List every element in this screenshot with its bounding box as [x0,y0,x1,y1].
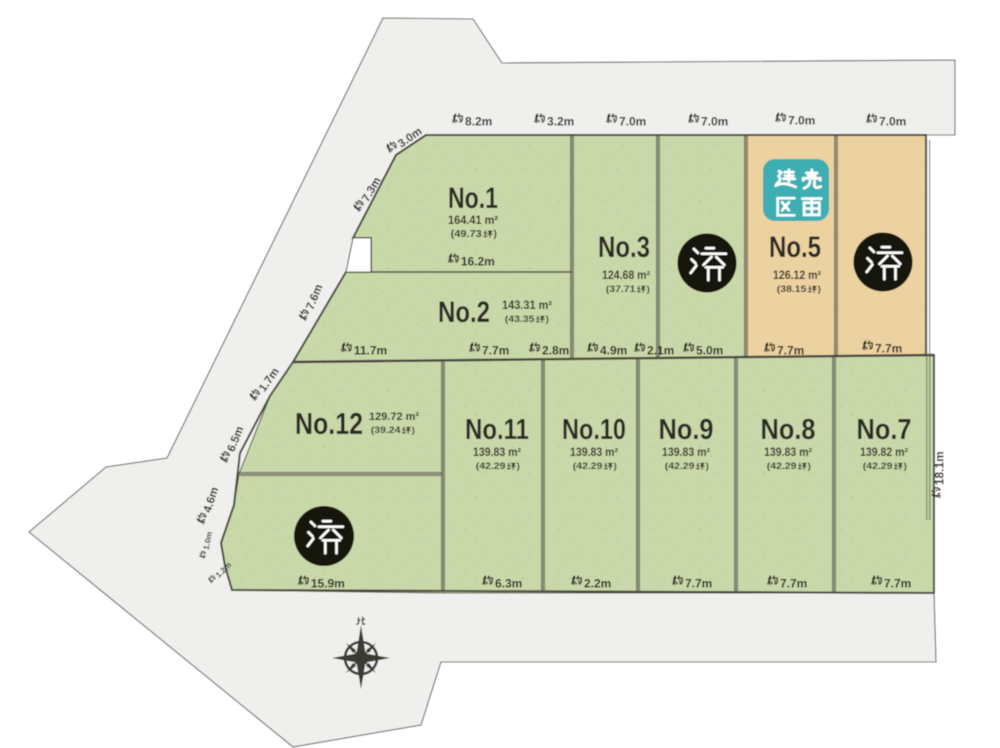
svg-text:7.7m: 7.7m [780,576,807,590]
svg-text:7.7m: 7.7m [884,576,911,590]
svg-text:No.11: No.11 [465,414,529,446]
svg-text:(37.71: (37.71 [606,284,636,295]
svg-text:164.41 m²: 164.41 m² [448,213,498,227]
svg-text:): ) [818,284,821,295]
svg-text:(43.35: (43.35 [505,314,535,325]
svg-text:(38.15: (38.15 [777,284,807,295]
svg-text:(42.29: (42.29 [767,461,797,472]
svg-text:(42.29: (42.29 [476,461,506,472]
svg-text:(42.29: (42.29 [863,461,893,472]
svg-text:126.12 m²: 126.12 m² [773,270,821,282]
svg-text:3.2m: 3.2m [547,114,574,128]
svg-text:7.0m: 7.0m [788,113,815,127]
svg-text:139.82 m²: 139.82 m² [860,447,908,459]
svg-text:7.7m: 7.7m [482,343,509,357]
svg-text:2.2m: 2.2m [584,576,611,590]
svg-text:(42.29: (42.29 [573,461,603,472]
svg-text:139.83 m²: 139.83 m² [662,447,710,459]
svg-text:15.9m: 15.9m [311,576,345,590]
svg-text:4.9m: 4.9m [600,343,627,357]
svg-text:): ) [904,461,907,472]
svg-text:2.1m: 2.1m [647,343,674,357]
svg-text:18.1m: 18.1m [932,451,946,485]
svg-text:6.3m: 6.3m [495,576,522,590]
svg-text:): ) [647,284,650,295]
svg-text:No.9: No.9 [659,414,714,446]
svg-text:): ) [614,461,617,472]
svg-text:129.72 m²: 129.72 m² [369,411,419,423]
svg-text:No.2: No.2 [438,296,490,329]
svg-text:): ) [412,425,415,436]
svg-text:No.5: No.5 [769,231,821,264]
svg-text:16.2m: 16.2m [461,254,495,268]
svg-text:143.31 m²: 143.31 m² [502,300,552,312]
svg-text:7.0m: 7.0m [619,114,646,128]
svg-text:139.83 m²: 139.83 m² [570,447,618,459]
svg-text:No.1: No.1 [448,182,498,215]
svg-text:No.3: No.3 [598,231,650,264]
svg-text:): ) [494,229,497,240]
svg-text:7.0m: 7.0m [879,114,906,128]
svg-text:): ) [546,314,549,325]
svg-text:5.0m: 5.0m [696,343,723,357]
svg-text:2.8m: 2.8m [542,343,569,357]
svg-text:No.12: No.12 [295,406,363,441]
svg-text:(42.29: (42.29 [665,461,695,472]
svg-text:7.0m: 7.0m [701,114,728,128]
svg-text:11.7m: 11.7m [354,343,387,357]
svg-text:No.8: No.8 [761,414,816,446]
svg-text:124.68 m²: 124.68 m² [602,270,650,282]
svg-text:139.83 m²: 139.83 m² [764,447,812,459]
svg-text:139.83 m²: 139.83 m² [473,447,521,459]
svg-text:No.10: No.10 [562,414,626,446]
svg-text:(39.24: (39.24 [371,425,401,436]
svg-text:7.7m: 7.7m [777,343,804,357]
svg-text:8.2m: 8.2m [465,114,492,128]
svg-text:): ) [517,461,520,472]
svg-text:): ) [808,461,811,472]
svg-text:): ) [706,461,709,472]
svg-text:7.7m: 7.7m [685,576,712,590]
svg-text:(49.73: (49.73 [451,229,483,240]
svg-text:No.7: No.7 [857,414,912,446]
svg-text:7.7m: 7.7m [875,341,902,355]
